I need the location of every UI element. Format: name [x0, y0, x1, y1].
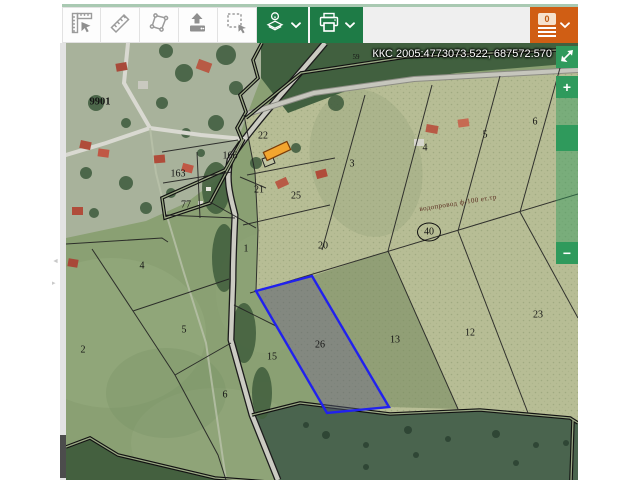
- toolbar-spacer: [363, 7, 530, 43]
- corner-ruler-icon: [70, 11, 94, 40]
- app-window: 0 ◄ ▸: [0, 0, 640, 480]
- panel-collapse-arrow[interactable]: ◄: [52, 258, 59, 265]
- toolbar: 0: [62, 7, 578, 43]
- order-list-icon: 0: [538, 13, 556, 37]
- measure-area-button[interactable]: [140, 7, 179, 43]
- map-canvas[interactable]: 9901 166 163 77 22 21 25 3 4 5 6 1 20 2 …: [66, 43, 578, 480]
- printer-icon: [318, 12, 340, 38]
- cart-count-badge: 0: [538, 13, 556, 25]
- chevron-down-icon: [560, 16, 570, 34]
- polygon-icon: [147, 11, 171, 40]
- print-button[interactable]: [310, 7, 363, 43]
- panel-expand-arrow[interactable]: ▸: [52, 280, 56, 287]
- upload-icon: [186, 11, 210, 40]
- layers-info-icon: [264, 12, 286, 38]
- satellite-map-art: [66, 43, 578, 480]
- ruler-icon: [108, 11, 132, 40]
- chevron-down-icon: [291, 16, 301, 34]
- layers-button[interactable]: [257, 7, 308, 43]
- measure-distance-button[interactable]: [101, 7, 140, 43]
- upload-button[interactable]: [179, 7, 218, 43]
- zoom-out-button[interactable]: −: [556, 242, 578, 264]
- zoom-slider-handle[interactable]: [556, 125, 578, 151]
- fullscreen-button[interactable]: [556, 46, 578, 68]
- chevron-down-icon: [345, 16, 355, 34]
- zoom-in-button[interactable]: +: [556, 76, 578, 98]
- selection-rectangle-icon: [225, 11, 249, 40]
- zoom-slider-track[interactable]: [556, 98, 578, 242]
- expand-arrows-icon: [561, 49, 573, 65]
- cart-orders-button[interactable]: 0: [530, 7, 578, 43]
- select-region-button[interactable]: [218, 7, 257, 43]
- coordinates-readout: ККС 2005:4773073.522, 687572.570: [372, 48, 552, 60]
- measure-coordinates-button[interactable]: [62, 7, 101, 43]
